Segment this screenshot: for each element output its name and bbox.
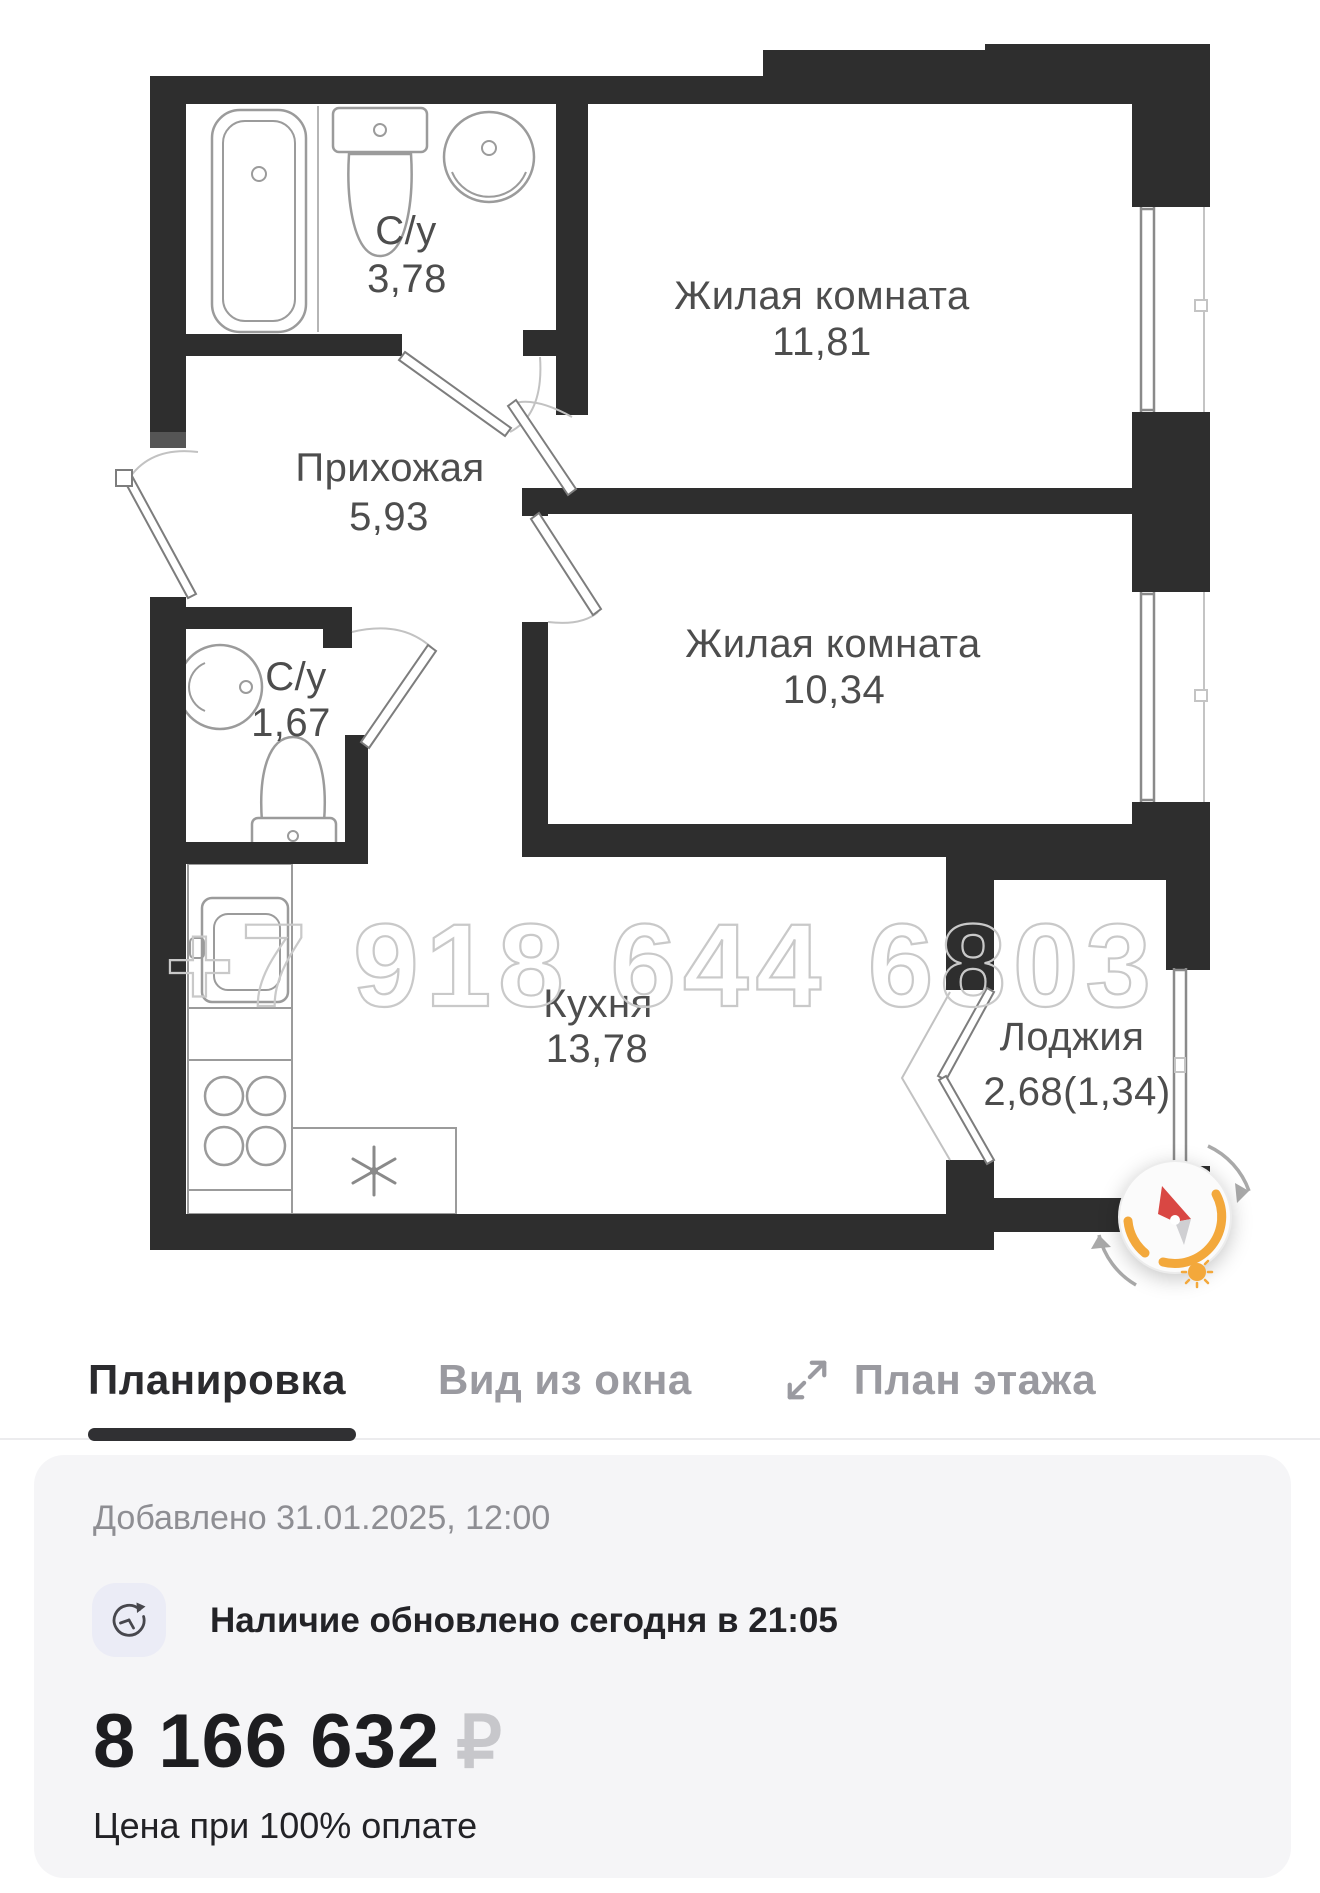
svg-text:2,68(1,34): 2,68(1,34) <box>983 1070 1170 1114</box>
entrance-door <box>116 451 198 598</box>
sink-small-icon <box>178 645 262 729</box>
tab-window-view-label: Вид из окна <box>438 1356 692 1404</box>
fridge-icon <box>292 1128 456 1214</box>
svg-text:Прихожая: Прихожая <box>295 446 484 490</box>
svg-text:10,34: 10,34 <box>783 668 886 712</box>
svg-text:Жилая комната: Жилая комната <box>674 274 970 318</box>
svg-text:11,81: 11,81 <box>772 320 872 364</box>
tab-floor-plan[interactable]: План этажа <box>784 1356 1096 1404</box>
sun-icon <box>1182 1257 1212 1287</box>
tab-window-view[interactable]: Вид из окна <box>438 1356 692 1404</box>
bathtub-icon <box>212 110 306 332</box>
expand-icon <box>784 1357 830 1403</box>
svg-text:С/у: С/у <box>375 209 437 253</box>
listing-page: С/у 3,78 Жилая комната 11,81 Прихожая 5,… <box>0 0 1320 1893</box>
media-tabs: Планировка Вид из окна План этажа <box>88 1352 1096 1408</box>
loggia-glazing <box>1174 968 1186 1168</box>
room-label: Жилая комната 11,81 <box>674 274 970 364</box>
availability-label: Наличие обновлено сегодня в 21:05 <box>210 1601 838 1641</box>
toilet-small-icon <box>252 737 336 852</box>
floor-plan-image[interactable]: С/у 3,78 Жилая комната 11,81 Прихожая 5,… <box>0 0 1320 1300</box>
svg-text:3,78: 3,78 <box>367 257 447 301</box>
window-room-2 <box>1130 592 1212 802</box>
svg-text:1,67: 1,67 <box>251 701 331 745</box>
window-room-1 <box>1130 207 1212 412</box>
svg-text:5,93: 5,93 <box>349 495 429 539</box>
active-tab-underline <box>88 1428 356 1441</box>
room-1-door <box>508 400 576 495</box>
availability-icon-tile <box>92 1583 166 1657</box>
price-value: 8 166 632 <box>93 1698 440 1785</box>
floor-plan-svg: С/у 3,78 Жилая комната 11,81 Прихожая 5,… <box>0 0 1320 1300</box>
offer-info-card: Добавлено 31.01.2025, 12:00 Наличие обно… <box>34 1455 1291 1878</box>
room-2-door <box>531 513 601 623</box>
tab-layout-label: Планировка <box>88 1356 346 1404</box>
phone-watermark: +7 918 644 6803 <box>165 900 1155 1032</box>
svg-text:13,78: 13,78 <box>546 1027 649 1071</box>
added-date-label: Добавлено 31.01.2025, 12:00 <box>93 1499 550 1538</box>
tab-layout[interactable]: Планировка <box>88 1356 346 1404</box>
tab-floor-plan-label: План этажа <box>854 1356 1096 1404</box>
stove-icon <box>205 1077 285 1165</box>
small-bathroom-door <box>352 628 436 748</box>
price-caption: Цена при 100% оплате <box>93 1805 477 1847</box>
clock-refresh-icon <box>107 1598 151 1642</box>
ruble-sign: ₽ <box>456 1700 502 1784</box>
sink-icon <box>444 112 534 202</box>
room-label: С/у 1,67 <box>251 655 331 745</box>
snowflake-icon <box>353 1147 395 1195</box>
room-label: Жилая комната 10,34 <box>685 622 981 712</box>
svg-text:С/у: С/у <box>265 655 327 699</box>
price-row: 8 166 632 ₽ <box>93 1698 502 1785</box>
svg-text:Жилая комната: Жилая комната <box>685 622 981 666</box>
room-label: Прихожая 5,93 <box>295 446 484 539</box>
